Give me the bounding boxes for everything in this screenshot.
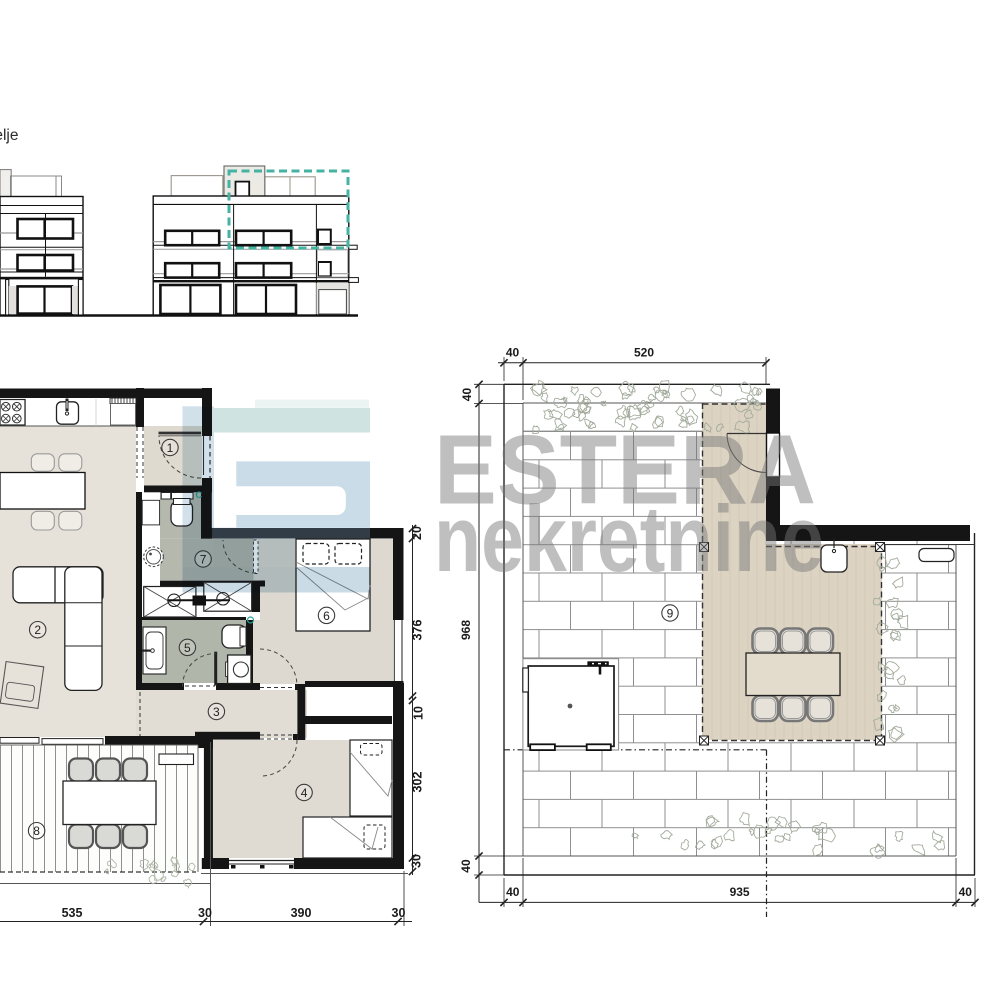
svg-text:9: 9 bbox=[667, 606, 674, 620]
svg-text:302: 302 bbox=[411, 772, 425, 793]
svg-text:1: 1 bbox=[167, 441, 174, 455]
svg-text:Pročelje: Pročelje bbox=[0, 127, 19, 144]
svg-text:10: 10 bbox=[412, 706, 426, 720]
svg-text:390: 390 bbox=[291, 906, 312, 920]
svg-text:30: 30 bbox=[410, 854, 424, 868]
svg-text:2: 2 bbox=[34, 623, 41, 637]
svg-text:20: 20 bbox=[410, 526, 424, 540]
svg-text:968: 968 bbox=[459, 620, 473, 640]
svg-text:4: 4 bbox=[301, 786, 308, 800]
svg-text:6: 6 bbox=[323, 609, 330, 623]
svg-text:376: 376 bbox=[411, 620, 425, 641]
svg-text:8: 8 bbox=[33, 824, 40, 838]
svg-text:40: 40 bbox=[959, 885, 973, 899]
svg-text:520: 520 bbox=[634, 346, 654, 360]
svg-text:3: 3 bbox=[213, 705, 220, 719]
svg-text:30: 30 bbox=[392, 906, 406, 920]
svg-text:40: 40 bbox=[460, 388, 474, 402]
svg-text:5: 5 bbox=[184, 641, 191, 655]
svg-text:40: 40 bbox=[506, 346, 520, 360]
svg-text:535: 535 bbox=[62, 906, 83, 920]
svg-text:40: 40 bbox=[506, 885, 520, 899]
svg-text:935: 935 bbox=[730, 885, 750, 899]
svg-text:30: 30 bbox=[198, 906, 212, 920]
svg-text:40: 40 bbox=[459, 859, 473, 873]
svg-text:nekretnine: nekretnine bbox=[434, 486, 824, 591]
